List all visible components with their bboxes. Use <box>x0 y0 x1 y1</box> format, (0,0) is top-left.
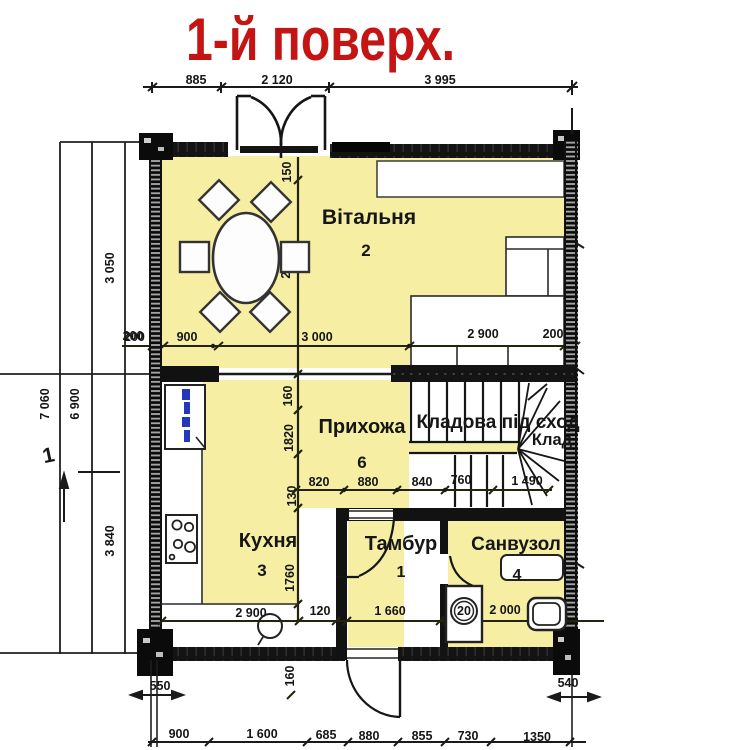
svg-text:150: 150 <box>280 162 294 183</box>
svg-text:880: 880 <box>359 729 380 743</box>
svg-text:760: 760 <box>451 473 472 487</box>
svg-text:540: 540 <box>558 676 579 690</box>
svg-text:1: 1 <box>40 443 57 468</box>
svg-text:Вітальня: Вітальня <box>322 206 416 229</box>
svg-text:Кладова під сход: Кладова під сход <box>416 412 579 433</box>
svg-text:1350: 1350 <box>523 730 551 744</box>
svg-text:820: 820 <box>309 475 330 489</box>
svg-text:900: 900 <box>177 330 198 344</box>
svg-text:160: 160 <box>283 666 297 687</box>
svg-text:200: 200 <box>123 329 144 343</box>
svg-text:855: 855 <box>412 729 433 743</box>
svg-text:1 660: 1 660 <box>374 604 405 618</box>
svg-text:6 900: 6 900 <box>68 388 82 419</box>
svg-text:Санвузол: Санвузол <box>471 534 561 555</box>
svg-text:900: 900 <box>169 727 190 741</box>
svg-text:1820: 1820 <box>282 424 296 452</box>
svg-text:Прихожа: Прихожа <box>318 416 406 438</box>
svg-text:3 050: 3 050 <box>103 252 117 283</box>
svg-text:2 900: 2 900 <box>235 606 266 620</box>
svg-text:880: 880 <box>358 475 379 489</box>
svg-text:Кухня: Кухня <box>239 530 297 552</box>
svg-text:730: 730 <box>458 729 479 743</box>
svg-text:6: 6 <box>357 453 366 472</box>
svg-text:550: 550 <box>150 679 171 693</box>
svg-text:20: 20 <box>457 604 471 618</box>
svg-text:3 840: 3 840 <box>103 525 117 556</box>
svg-text:120: 120 <box>310 604 331 618</box>
svg-text:160: 160 <box>281 386 295 407</box>
svg-text:2: 2 <box>361 241 370 260</box>
svg-text:3: 3 <box>257 561 266 580</box>
svg-text:200: 200 <box>543 327 564 341</box>
svg-text:840: 840 <box>412 475 433 489</box>
svg-text:Тамбур: Тамбур <box>365 533 438 555</box>
svg-text:7 060: 7 060 <box>38 388 52 419</box>
svg-text:3 000: 3 000 <box>301 330 332 344</box>
svg-text:885: 885 <box>186 73 207 87</box>
svg-text:2 000: 2 000 <box>489 603 520 617</box>
svg-text:3 995: 3 995 <box>424 73 455 87</box>
svg-text:2 900: 2 900 <box>467 327 498 341</box>
svg-text:1 600: 1 600 <box>246 727 277 741</box>
svg-text:Клад: Клад <box>532 431 573 449</box>
svg-text:1760: 1760 <box>283 564 297 592</box>
svg-text:685: 685 <box>316 728 337 742</box>
svg-text:2 120: 2 120 <box>261 73 292 87</box>
svg-text:1: 1 <box>397 564 406 581</box>
svg-text:4: 4 <box>513 567 522 584</box>
svg-text:1 490: 1 490 <box>511 474 542 488</box>
svg-text:1-й поверх.: 1-й поверх. <box>186 6 455 73</box>
